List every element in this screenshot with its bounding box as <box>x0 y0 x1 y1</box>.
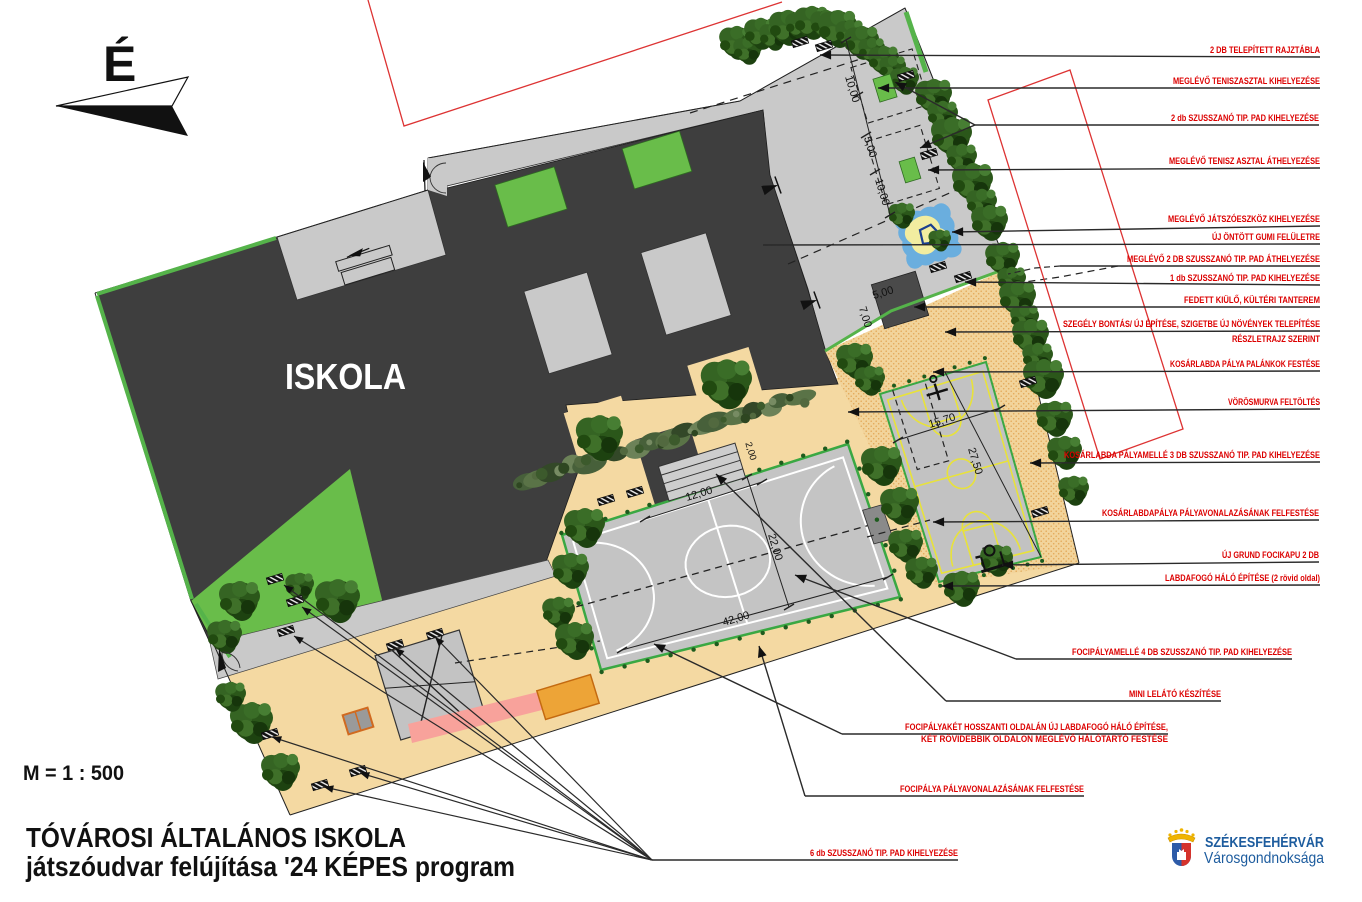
svg-text:LABDAFOGÓ HÁLÓ ÉPÍTÉSE (2 rövi: LABDAFOGÓ HÁLÓ ÉPÍTÉSE (2 rövid oldal) <box>1165 572 1320 584</box>
svg-text:2 db SZUSSZANÓ TIP. PAD KIHELY: 2 db SZUSSZANÓ TIP. PAD KIHELYEZÉSE <box>1171 112 1319 124</box>
svg-text:KOSÁRLABDAPÁLYA PÁLYAVONALAZÁS: KOSÁRLABDAPÁLYA PÁLYAVONALAZÁSÁNAK FELFE… <box>1102 508 1319 519</box>
svg-text:1 db SZUSSZANÓ TIP. PAD KIHELY: 1 db SZUSSZANÓ TIP. PAD KIHELYEZÉSE <box>1170 272 1320 284</box>
svg-text:MEGLÉVŐ 2 DB SZUSSZANÓ TIP. PA: MEGLÉVŐ 2 DB SZUSSZANÓ TIP. PAD ÁTHELYEZ… <box>1127 253 1320 265</box>
svg-text:FOCIPÁLYA PÁLYAVONALAZÁSÁNAK F: FOCIPÁLYA PÁLYAVONALAZÁSÁNAK FELFESTÉSE <box>900 784 1084 795</box>
svg-text:É: É <box>103 36 136 92</box>
svg-text:SZÉKESFEHÉRVÁR: SZÉKESFEHÉRVÁR <box>1205 834 1324 851</box>
svg-text:MINI LELÁTÓ KÉSZÍTÉSE: MINI LELÁTÓ KÉSZÍTÉSE <box>1129 688 1221 700</box>
svg-text:ÚJ GRUND FOCIKAPU 2 DB: ÚJ GRUND FOCIKAPU 2 DB <box>1222 549 1319 561</box>
svg-text:KÉT RÖVIDEBBIK OLDALON MEGLÉVŐ: KÉT RÖVIDEBBIK OLDALON MEGLÉVŐ HÁLÓTARTÓ… <box>921 733 1168 745</box>
svg-text:TÓVÁROSI ÁLTALÁNOS ISKOLA: TÓVÁROSI ÁLTALÁNOS ISKOLA <box>26 822 406 853</box>
svg-text:FOCIPÁLYAMELLÉ 4 DB SZUSSZANÓ: FOCIPÁLYAMELLÉ 4 DB SZUSSZANÓ TIP. PAD K… <box>1072 646 1292 658</box>
svg-text:KOSÁRLABDA PÁLYA PALÁNKOK FEST: KOSÁRLABDA PÁLYA PALÁNKOK FESTÉSE <box>1170 359 1320 370</box>
svg-text:játszóudvar felújítása '24 KÉP: játszóudvar felújítása '24 KÉPES program <box>25 851 515 882</box>
svg-text:FOCIPÁLYAKÉT HOSSZANTI OLDALÁN: FOCIPÁLYAKÉT HOSSZANTI OLDALÁN ÚJ LABDAF… <box>905 721 1168 733</box>
svg-text:RÉSZLETRAJZ SZERINT: RÉSZLETRAJZ SZERINT <box>1232 334 1320 345</box>
svg-text:6 db SZUSSZANÓ TIP. PAD KIHELY: 6 db SZUSSZANÓ TIP. PAD KIHELYEZÉSE <box>810 847 958 859</box>
svg-text:KOSÁRLABDA PÁLYAMELLÉ 3 DB SZU: KOSÁRLABDA PÁLYAMELLÉ 3 DB SZUSSZANÓ TIP… <box>1064 449 1320 461</box>
svg-text:MEGLÉVŐ TENISZASZTAL KIHELYEZÉ: MEGLÉVŐ TENISZASZTAL KIHELYEZÉSE <box>1173 75 1320 87</box>
svg-text:VÖRÖSMURVA FELTÖLTÉS: VÖRÖSMURVA FELTÖLTÉS <box>1228 397 1320 408</box>
svg-text:SZEGÉLY BONTÁS/ ÚJ ÉPÍTÉSE, SZ: SZEGÉLY BONTÁS/ ÚJ ÉPÍTÉSE, SZIGETBE ÚJ … <box>1063 318 1320 330</box>
svg-text:FEDETT KIÜLŐ, KÜLTÉRI TANTEREM: FEDETT KIÜLŐ, KÜLTÉRI TANTEREM <box>1184 294 1320 306</box>
svg-text:MEGLÉVŐ JÁTSZÓESZKÖZ KIHELYEZÉ: MEGLÉVŐ JÁTSZÓESZKÖZ KIHELYEZÉSE <box>1168 213 1320 225</box>
svg-text:MEGLÉVŐ TENISZ ASZTAL ÁTHELYEZ: MEGLÉVŐ TENISZ ASZTAL ÁTHELYEZÉSE <box>1169 155 1320 167</box>
svg-text:M = 1 : 500: M = 1 : 500 <box>23 762 124 785</box>
svg-text:2 DB TELEPÍTETT RAJZTÁBLA: 2 DB TELEPÍTETT RAJZTÁBLA <box>1210 45 1320 56</box>
svg-text:Városgondnoksága: Városgondnoksága <box>1204 850 1324 867</box>
svg-text:ÚJ ÖNTÖTT GUMI FELÜLETRE: ÚJ ÖNTÖTT GUMI FELÜLETRE <box>1212 231 1320 243</box>
svg-text:ISKOLA: ISKOLA <box>285 356 406 397</box>
